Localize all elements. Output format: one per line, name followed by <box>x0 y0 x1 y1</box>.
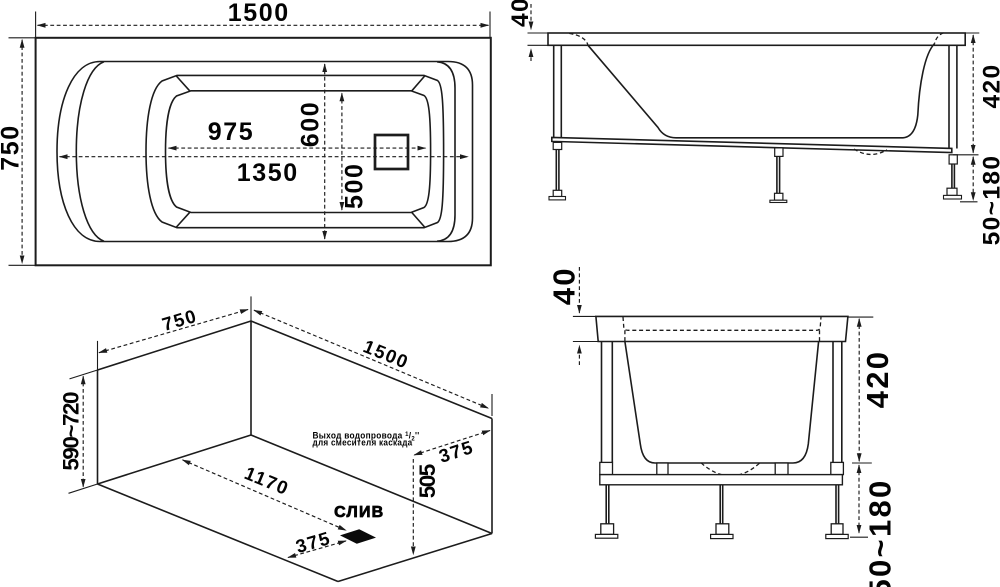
svg-text:1170: 1170 <box>242 462 293 499</box>
svg-text:420: 420 <box>860 350 895 409</box>
svg-text:420: 420 <box>978 63 1000 108</box>
svg-text:375: 375 <box>293 527 333 557</box>
svg-text:1500: 1500 <box>228 0 290 27</box>
svg-text:50~180: 50~180 <box>978 155 1000 246</box>
svg-text:1500: 1500 <box>360 335 412 372</box>
svg-text:975: 975 <box>208 118 255 146</box>
svg-text:40: 40 <box>547 266 582 305</box>
svg-text:50~180: 50~180 <box>863 478 898 587</box>
svg-text:для смесителя каскада: для смесителя каскада <box>313 438 414 448</box>
svg-text:40: 40 <box>507 0 534 27</box>
svg-text:750: 750 <box>0 124 25 171</box>
svg-text:750: 750 <box>160 305 200 335</box>
svg-text:590~720: 590~720 <box>58 392 83 471</box>
svg-text:375: 375 <box>436 436 476 467</box>
svg-text:СЛИВ: СЛИВ <box>334 504 384 521</box>
svg-text:505: 505 <box>415 464 440 498</box>
svg-text:600: 600 <box>296 101 324 148</box>
svg-text:500: 500 <box>341 162 369 209</box>
svg-text:1350: 1350 <box>237 159 299 187</box>
